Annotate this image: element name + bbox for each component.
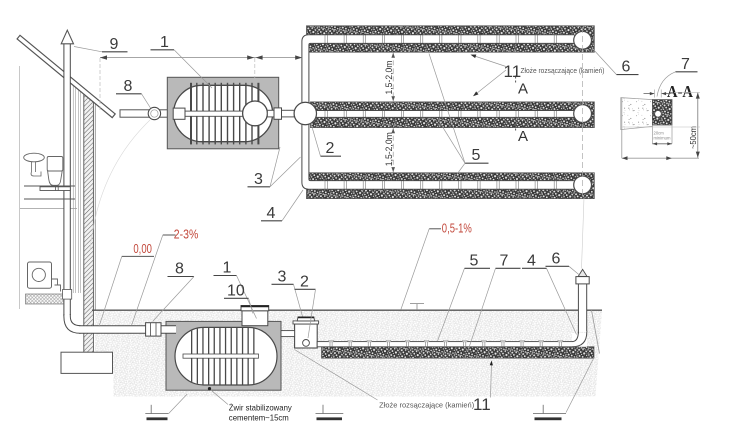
svg-text:5: 5 bbox=[470, 252, 479, 269]
svg-text:0,00: 0,00 bbox=[133, 241, 152, 256]
svg-text:2: 2 bbox=[326, 140, 335, 157]
svg-text:1: 1 bbox=[223, 260, 232, 277]
svg-text:2: 2 bbox=[300, 273, 309, 290]
svg-text:10: 10 bbox=[227, 282, 245, 299]
svg-text:11: 11 bbox=[504, 62, 522, 81]
svg-text:A-A: A-A bbox=[667, 82, 694, 101]
svg-text:8: 8 bbox=[175, 261, 184, 278]
svg-text:A: A bbox=[518, 128, 528, 145]
svg-text:A: A bbox=[518, 80, 528, 97]
svg-text:minimum: minimum bbox=[654, 136, 671, 141]
svg-text:1,5-2,0m: 1,5-2,0m bbox=[384, 61, 394, 95]
svg-text:Złoże rozsączające (kamień): Złoże rozsączające (kamień) bbox=[379, 403, 474, 410]
svg-text:6: 6 bbox=[622, 59, 631, 76]
svg-text:3: 3 bbox=[278, 268, 287, 285]
svg-text:7: 7 bbox=[500, 252, 509, 269]
svg-text:4: 4 bbox=[527, 252, 536, 269]
svg-text:7: 7 bbox=[681, 56, 690, 73]
svg-text:Żwir stabilizowany: Żwir stabilizowany bbox=[229, 403, 293, 413]
svg-text:~50cm: ~50cm bbox=[689, 126, 698, 149]
svg-text:4: 4 bbox=[267, 205, 276, 222]
svg-text:1,5-2,0m: 1,5-2,0m bbox=[384, 132, 394, 166]
svg-text:6: 6 bbox=[552, 250, 561, 267]
svg-text:2-3%: 2-3% bbox=[174, 228, 199, 242]
svg-text:9: 9 bbox=[110, 36, 119, 53]
svg-text:1: 1 bbox=[160, 34, 169, 51]
svg-text:11: 11 bbox=[473, 395, 491, 414]
svg-text:3: 3 bbox=[254, 171, 263, 188]
svg-text:cementem~15cm: cementem~15cm bbox=[229, 413, 289, 423]
svg-text:5: 5 bbox=[472, 147, 481, 164]
svg-text:8: 8 bbox=[124, 78, 133, 95]
svg-text:Złoże rozsączające (kamień): Złoże rozsączające (kamień) bbox=[521, 68, 605, 75]
svg-text:0,5-1%: 0,5-1% bbox=[442, 221, 472, 235]
